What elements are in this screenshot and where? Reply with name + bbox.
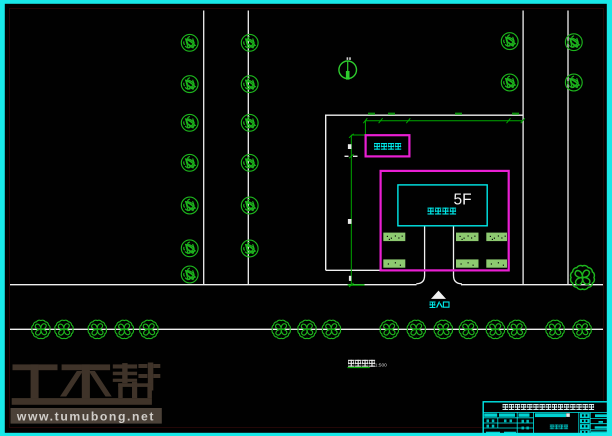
svg-text:www.tumubong.net: www.tumubong.net xyxy=(16,409,155,423)
svg-text:5F: 5F xyxy=(454,191,472,208)
svg-text:1:500: 1:500 xyxy=(375,362,387,368)
